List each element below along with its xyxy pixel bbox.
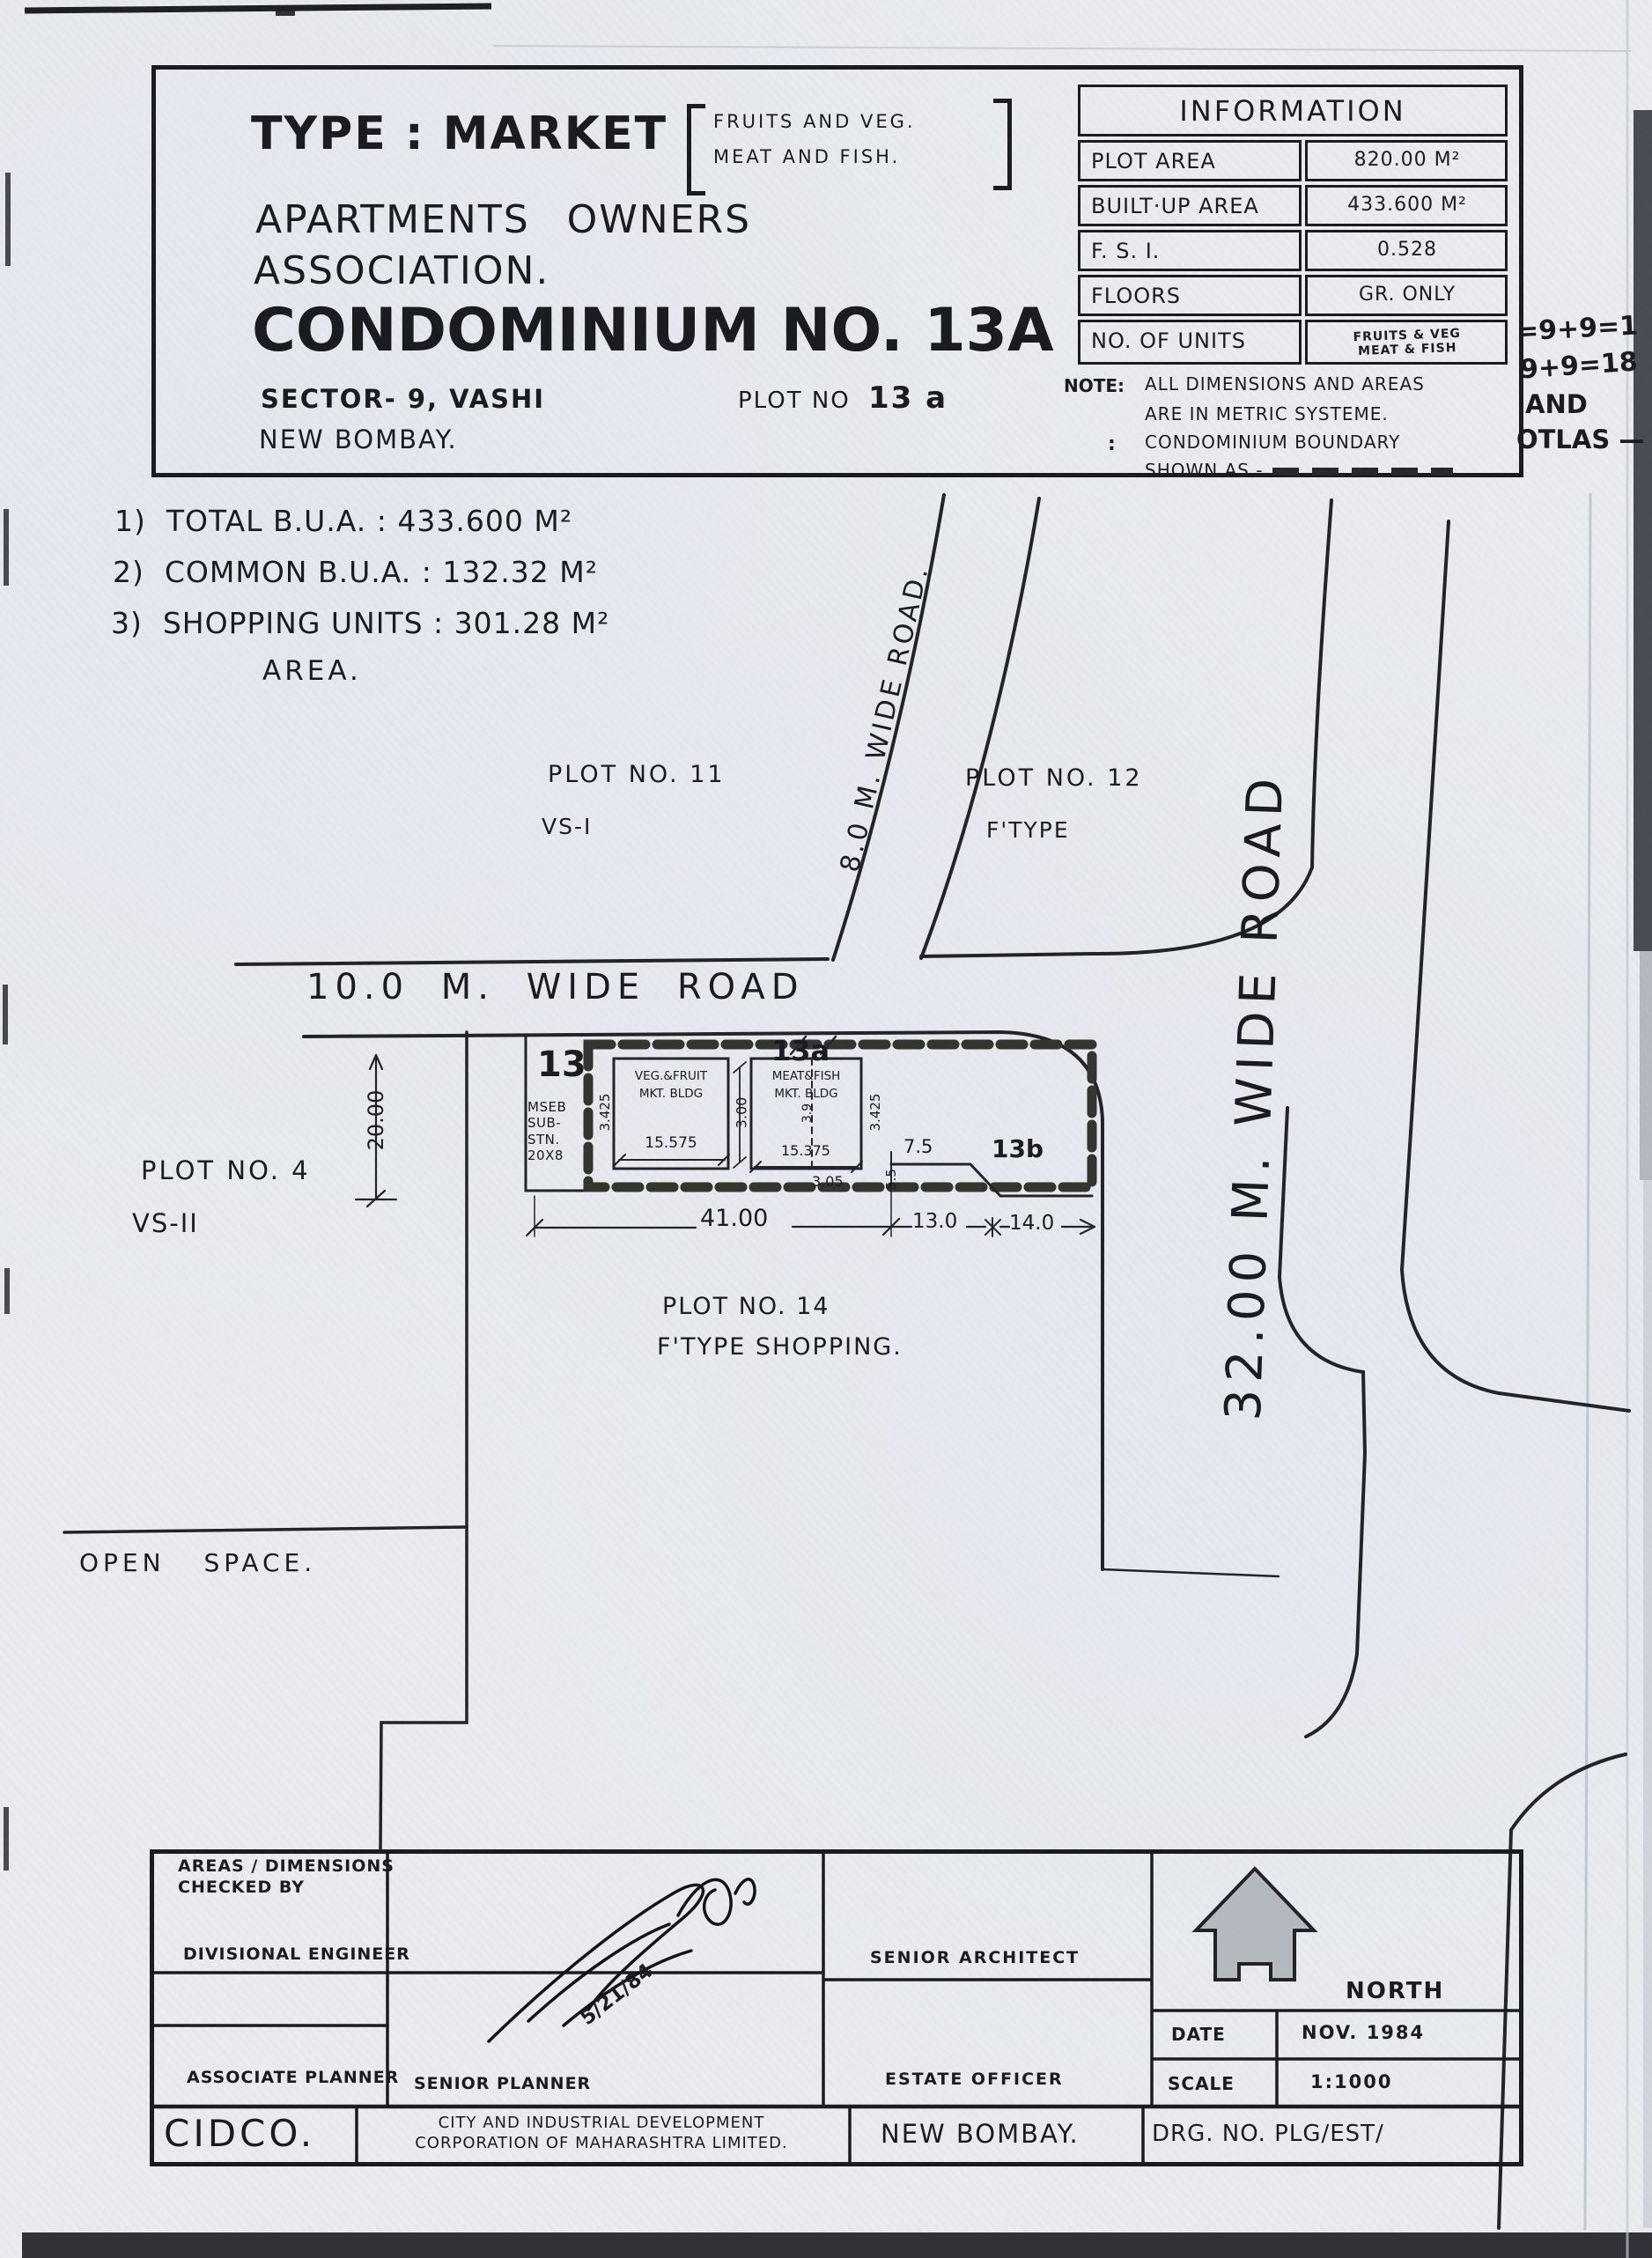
checked-by-line1: AREAS / DIMENSIONS: [178, 1856, 395, 1876]
item-text: SHOPPING UNITS : 301.28 M²: [163, 606, 609, 640]
road-32m-east-edge: [1402, 521, 1629, 1411]
plot-13-number: 13: [537, 1044, 586, 1085]
row-label: NO. OF UNITS: [1078, 320, 1302, 365]
type-label: TYPE : MARKET: [251, 107, 667, 160]
note-line1: ALL DIMENSIONS AND AREAS: [1145, 373, 1425, 395]
city-label: NEW BOMBAY.: [259, 424, 458, 454]
table-row: NO. OF UNITS FRUITS & VEG MEAT & FISH: [1078, 320, 1508, 365]
checked-by-line2: CHECKED BY: [178, 1878, 305, 1897]
note-colon: :: [1108, 433, 1116, 455]
building1-dim: 15.575: [616, 1134, 726, 1152]
note-line3: CONDOMINIUM BOUNDARY: [1145, 432, 1400, 453]
note-label: NOTE:: [1064, 375, 1125, 396]
new-bombay-label: NEW BOMBAY.: [881, 2119, 1080, 2149]
plot-4-type: VS-II: [132, 1208, 199, 1238]
dim-140: 14.0: [1009, 1212, 1054, 1235]
dim-15375-line: [750, 1162, 862, 1172]
dim-15575-line: [615, 1155, 729, 1165]
information-title: INFORMATION: [1078, 85, 1508, 137]
road-32m-west-edge-lower: [1280, 1108, 1365, 1737]
bracket-left: [687, 104, 705, 196]
dim-2000: 20.00: [364, 1054, 388, 1186]
plot-boundary-west: [380, 1032, 467, 1849]
condominium-boundary: [588, 1044, 1092, 1187]
scale-label: SCALE: [1168, 2073, 1235, 2094]
bracket-line2: MEAT AND FISH.: [713, 146, 900, 167]
row-label: F. S. I.: [1078, 230, 1302, 271]
org-line1: APARTMENTS OWNERS: [255, 197, 751, 242]
dim-300: 3.00: [734, 1065, 750, 1162]
plot-14-type: F'TYPE SHOPPING.: [657, 1333, 903, 1361]
open-space-label: OPEN SPACE.: [79, 1548, 316, 1577]
item-text: COMMON B.U.A. : 132.32 M²: [165, 555, 598, 589]
drawing-sheet: TYPE : MARKET FRUITS AND VEG. MEAT AND F…: [0, 0, 1652, 2258]
road-32m-west-edge-upper: [1312, 500, 1331, 867]
drg-no-label: DRG. NO. PLG/EST/: [1152, 2121, 1384, 2147]
plot-14-label: PLOT NO. 14: [662, 1293, 830, 1320]
north-label: NORTH: [1346, 1978, 1444, 2004]
handwritten-line3: AND: [1525, 389, 1588, 419]
bracket-right: [993, 99, 1012, 190]
estate-officer-label: ESTATE OFFICER: [885, 2070, 1064, 2089]
table-row: PLOT AREA 820.00 M²: [1078, 140, 1508, 181]
label-13a: 13a: [771, 1034, 830, 1067]
scale-value: 1:1000: [1310, 2071, 1392, 2092]
road-10m-label: 10.0 M. WIDE ROAD: [306, 967, 805, 1007]
row-value: 433.600 M²: [1305, 185, 1508, 226]
cidco-logo-text: CIDCO.: [164, 2112, 315, 2155]
associate-planner-label: ASSOCIATE PLANNER: [187, 2068, 399, 2087]
senior-planner-label: SENIOR PLANNER: [414, 2074, 591, 2093]
boundary-dash-sample: [1272, 468, 1453, 476]
dim-3425-right: 3.425: [867, 1064, 883, 1161]
bua-item-3: 3) SHOPPING UNITS : 301.28 M²: [111, 606, 609, 640]
plot-12-label: PLOT NO. 12: [965, 764, 1143, 792]
dim-4100: 41.00: [700, 1205, 768, 1232]
plot-12-type: F'TYPE: [986, 817, 1070, 843]
mseb-substation-label: MSEB SUB- STN. 20X8: [527, 1099, 566, 1163]
org-line2: ASSOCIATION.: [254, 248, 549, 293]
plot-no-value: 13 a: [868, 380, 948, 416]
senior-architect-label: SENIOR ARCHITECT: [870, 1948, 1080, 1967]
condominium-title: CONDOMINIUM NO. 13A: [252, 296, 1054, 365]
divisional-engineer-label: DIVISIONAL ENGINEER: [183, 1944, 410, 1964]
row-label: FLOORS: [1078, 275, 1302, 316]
table-row: BUILT·UP AREA 433.600 M²: [1078, 185, 1508, 226]
item-num: 1): [114, 504, 146, 538]
corporation-line1: CITY AND INDUSTRIAL DEVELOPMENT: [359, 2114, 844, 2132]
dim-asterisk-tick: [985, 1218, 1000, 1236]
note-line4: SHOWN AS -: [1145, 460, 1453, 481]
road-10m-north-edge-west: [236, 959, 828, 964]
open-space-line: [64, 1527, 467, 1532]
row-label: PLOT AREA: [1078, 140, 1302, 181]
building1-name-line1: VEG.&FRUIT: [616, 1069, 726, 1083]
table-row: F. S. I. 0.528: [1078, 230, 1508, 271]
information-table: INFORMATION PLOT AREA 820.00 M² BUILT·UP…: [1078, 85, 1508, 365]
building1-name-line2: MKT. BLDG: [616, 1087, 726, 1101]
table-row: FLOORS GR. ONLY: [1078, 275, 1508, 316]
row-value: 0.528: [1305, 230, 1508, 271]
date-label: DATE: [1171, 2024, 1226, 2045]
note-line4-text: SHOWN AS -: [1145, 460, 1264, 481]
handwritten-line1: =9+9=1: [1516, 310, 1639, 347]
item-num: 2): [113, 555, 144, 589]
dim-75: 7.5: [903, 1136, 933, 1157]
handwritten-line4: OTLAS —: [1516, 424, 1644, 454]
item-text: TOTAL B.U.A. : 433.600 M²: [166, 504, 572, 538]
bua-area-suffix: AREA.: [262, 655, 362, 687]
label-13b: 13b: [992, 1134, 1044, 1163]
sector-label: SECTOR- 9, VASHI: [261, 384, 545, 414]
dim-3425-left: 3.425: [597, 1064, 613, 1161]
dim-305: 3.05: [812, 1173, 844, 1190]
bua-item-2: 2) COMMON B.U.A. : 132.32 M²: [113, 555, 598, 589]
row-value: 820.00 M²: [1305, 140, 1508, 181]
row-value: GR. ONLY: [1305, 275, 1508, 316]
row-label: BUILT·UP AREA: [1078, 185, 1302, 226]
plot-11-label: PLOT NO. 11: [548, 761, 726, 788]
road-8m-east-edge: [921, 498, 1039, 958]
bua-item-1: 1) TOTAL B.U.A. : 433.600 M²: [114, 504, 572, 538]
plot-11-type: VS-I: [542, 814, 592, 839]
plot-no-label: PLOT NO: [738, 387, 851, 414]
bracket-line1: FRUITS AND VEG.: [713, 111, 916, 132]
date-value: NOV. 1984: [1302, 2022, 1425, 2043]
note-line2: ARE IN METRIC SYSTEME.: [1145, 403, 1389, 424]
corporation-line2: CORPORATION OF MAHARASHTRA LIMITED.: [359, 2134, 844, 2152]
plot14-south-line: [1103, 1569, 1279, 1576]
item-num: 3): [111, 606, 143, 640]
dim-130: 13.0: [912, 1210, 957, 1233]
dim-55: 5.5: [883, 1135, 899, 1223]
plot-4-label: PLOT NO. 4: [141, 1155, 311, 1185]
row-value-units: FRUITS & VEG MEAT & FISH: [1305, 320, 1508, 365]
dim-39: 3.9: [800, 1065, 815, 1162]
